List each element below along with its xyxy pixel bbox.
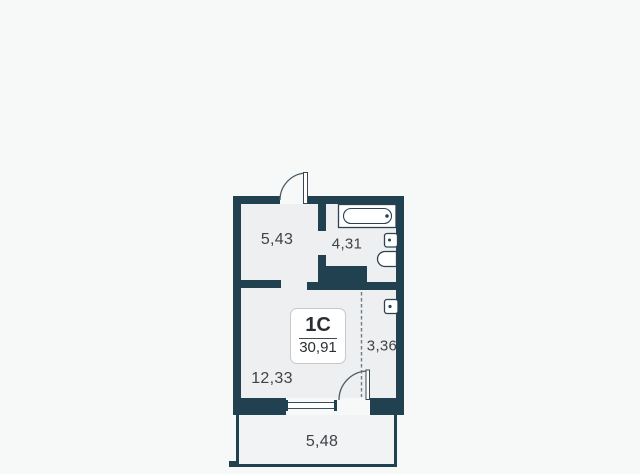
unit-type-label: 1C [305,315,331,335]
sink [385,234,398,248]
bathtub-drain-dot [385,214,389,218]
room-label-balcony: 5,48 [306,433,338,451]
entrance-door-arc [280,173,307,200]
washing-machine-dot [388,305,391,308]
room-label-living-room: 12,33 [251,370,293,388]
balcony-door-leaf [366,370,370,400]
room-label-bathroom: 4,31 [332,236,362,253]
entrance-door-leaf [304,173,308,204]
room-label-hallway: 5,43 [261,231,293,249]
sink-dot [388,239,391,242]
toilet [378,252,397,267]
floor-plan: 5,43 4,31 12,33 3,36 5,48 1C 30,91 [0,0,640,474]
unit-badge: 1C 30,91 [290,308,346,364]
balcony-door-arc [339,371,368,400]
plan-symbols-layer [0,0,640,474]
room-label-wardrobe-zone: 3,36 [367,338,397,355]
unit-total-area: 30,91 [299,340,337,357]
